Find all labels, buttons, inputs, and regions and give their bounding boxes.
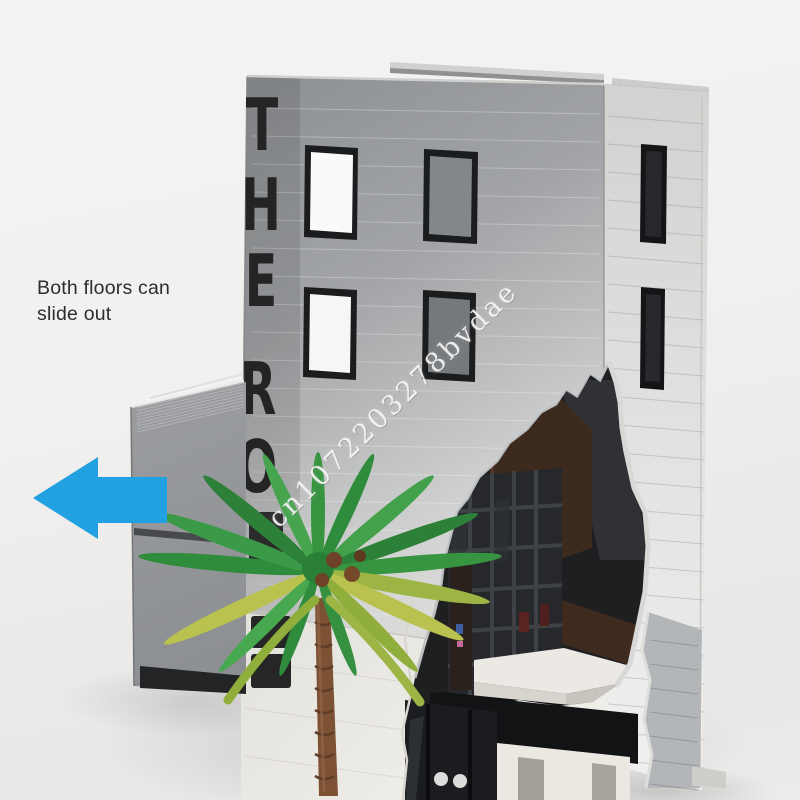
interior-item-red (540, 604, 549, 626)
product-image-lego-moc-building: T H E R O (0, 0, 800, 800)
sign-letter: T (246, 84, 279, 168)
white-wall-door (592, 763, 616, 800)
window-side-upper (640, 144, 667, 244)
window-second-floor-left (303, 287, 357, 380)
shelf-item-pink (457, 641, 463, 647)
door-handle-dot (434, 772, 448, 786)
building-render: T H E R O (0, 0, 800, 800)
shelf-item-blue (456, 624, 463, 634)
annotation-caption: Both floors can slide out (37, 276, 207, 327)
window-side-lower (640, 287, 665, 390)
sign-letter: E (245, 240, 277, 324)
window-second-floor-right (422, 290, 476, 382)
door-handle-dot (453, 774, 467, 788)
broken-corner-column (642, 612, 726, 800)
interior-item-red (519, 612, 529, 632)
annotation-line-2: slide out (37, 302, 207, 328)
window-third-floor-left (304, 145, 358, 240)
window-third-floor-right (423, 149, 478, 244)
white-wall-door (518, 757, 544, 800)
glass-reflection (494, 497, 510, 562)
annotation-line-1: Both floors can (37, 276, 207, 302)
sign-letter: H (241, 164, 281, 248)
